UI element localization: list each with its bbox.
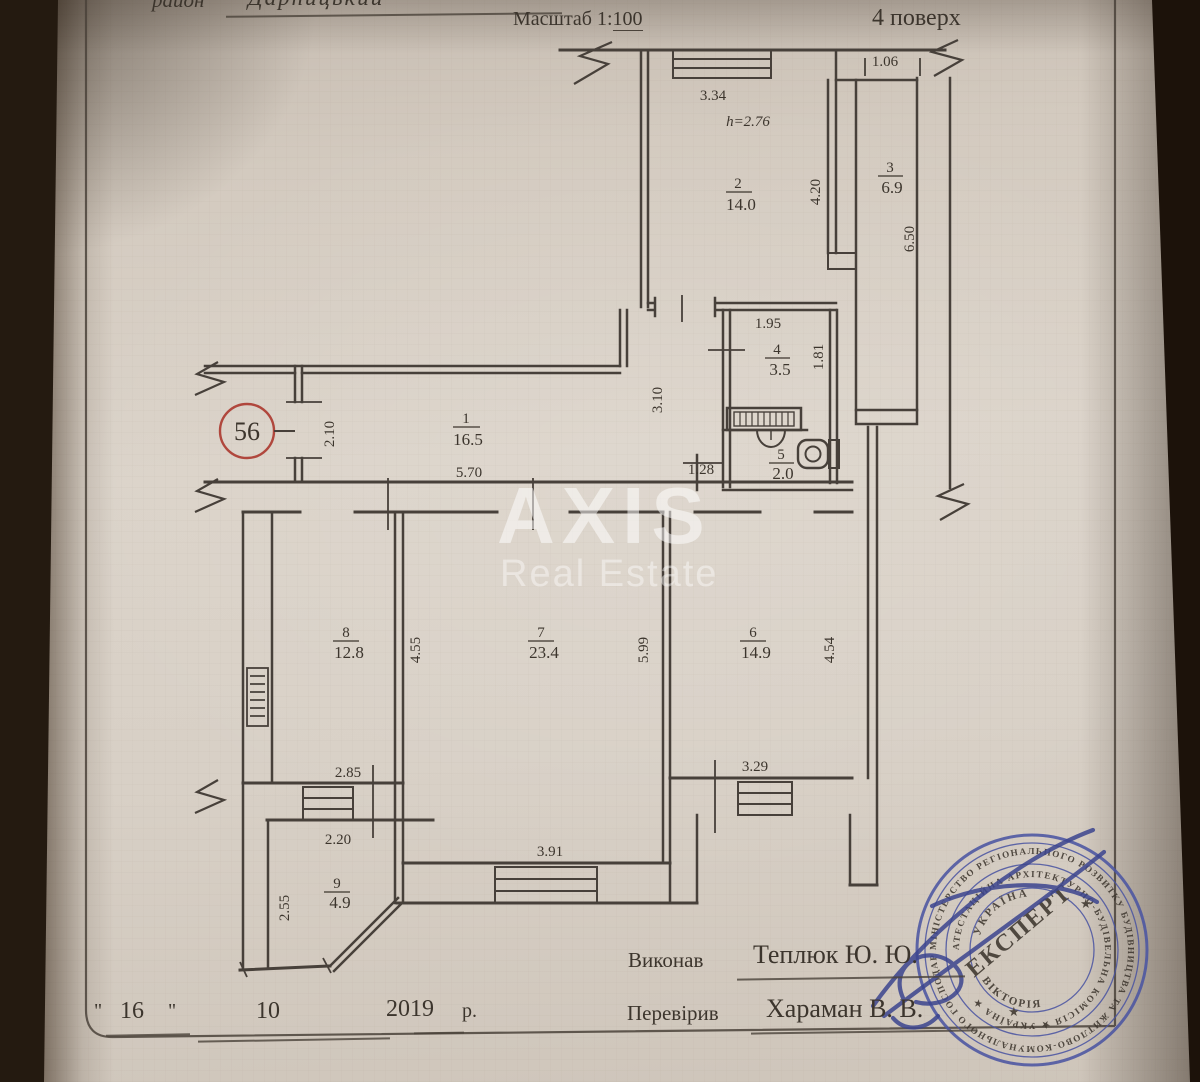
room6-area: 14.9 [741, 643, 771, 662]
date-close-quote: " [168, 1000, 176, 1023]
dim-3-34: 3.34 [700, 88, 727, 104]
dim-4-54: 4.54 [822, 636, 838, 663]
room4-number: 4 [773, 342, 781, 358]
checker-name: Хараман В. В. [766, 994, 923, 1024]
dim-4-20: 4.20 [808, 179, 824, 205]
dim-5-99: 5.99 [636, 637, 652, 663]
dim-2-20: 2.20 [325, 832, 351, 848]
date-open-quote: " [94, 1000, 102, 1023]
room9-number: 9 [333, 876, 341, 892]
dim-2-10: 2.10 [322, 421, 338, 447]
wall-break-symbols [195, 40, 968, 813]
room3-area: 6.9 [881, 178, 902, 197]
room3-number: 3 [886, 160, 894, 176]
dim-1-95: 1.95 [755, 316, 781, 332]
room7-area: 23.4 [529, 643, 559, 662]
room4-area: 3.5 [769, 360, 790, 379]
date-year-suffix: р. [462, 1000, 477, 1023]
dim-3-10: 3.10 [650, 387, 666, 413]
break-icon-top-right [932, 40, 962, 76]
date-year: 2019 [386, 996, 434, 1023]
room6-number: 6 [749, 625, 757, 641]
window-room6 [738, 782, 792, 815]
executor-label: Виконав [628, 948, 703, 973]
room5-area: 2.0 [772, 464, 793, 483]
toilet-icon [798, 440, 828, 468]
break-icon-top-left [574, 42, 612, 84]
checker-label: Перевірив [627, 1001, 719, 1026]
break-icon-left-bottom [195, 780, 224, 813]
date-month: 10 [256, 998, 280, 1025]
break-icon-right [938, 484, 968, 520]
dim-2-85: 2.85 [335, 765, 361, 781]
room7-number: 7 [537, 625, 545, 641]
ceiling-height-note: h=2.76 [726, 114, 770, 130]
balcony-door-window [828, 253, 856, 269]
watermark-tagline: Real Estate [500, 553, 718, 596]
photo-of-floor-plan-document: район Дарницький Масштаб 1:100 4 поверх [0, 0, 1200, 1082]
dim-3-91: 3.91 [537, 844, 563, 860]
dim-1-06: 1.06 [872, 54, 899, 70]
executor-name: Теплюк Ю. Ю. [753, 940, 918, 970]
dim-6-50: 6.50 [902, 226, 918, 252]
watermark-brand: AXIS [497, 470, 712, 562]
dim-1-81: 1.81 [811, 344, 827, 370]
room2-area: 14.0 [726, 195, 756, 214]
room1-number: 1 [462, 411, 470, 427]
apartment-number-badge: 56 [220, 404, 295, 458]
apartment-number: 56 [234, 417, 260, 446]
room1-area: 16.5 [453, 430, 483, 449]
date-day: 16 [120, 998, 144, 1025]
room8-number: 8 [342, 625, 350, 641]
stamp-star-icon: ★ [1008, 1004, 1020, 1019]
dim-3-29: 3.29 [742, 759, 768, 775]
room9-area: 4.9 [329, 893, 350, 912]
room2-number: 2 [734, 176, 742, 192]
window-room8 [303, 787, 353, 820]
room8-area: 12.8 [334, 643, 364, 662]
break-icon-left-mid [195, 479, 224, 512]
dim-5-70: 5.70 [456, 465, 482, 481]
dim-2-55: 2.55 [277, 895, 293, 921]
window-room2 [673, 50, 771, 78]
vent-shaft [247, 668, 268, 726]
window-room7 [495, 867, 597, 903]
dim-4-55: 4.55 [408, 637, 424, 663]
room5-number: 5 [777, 447, 785, 463]
